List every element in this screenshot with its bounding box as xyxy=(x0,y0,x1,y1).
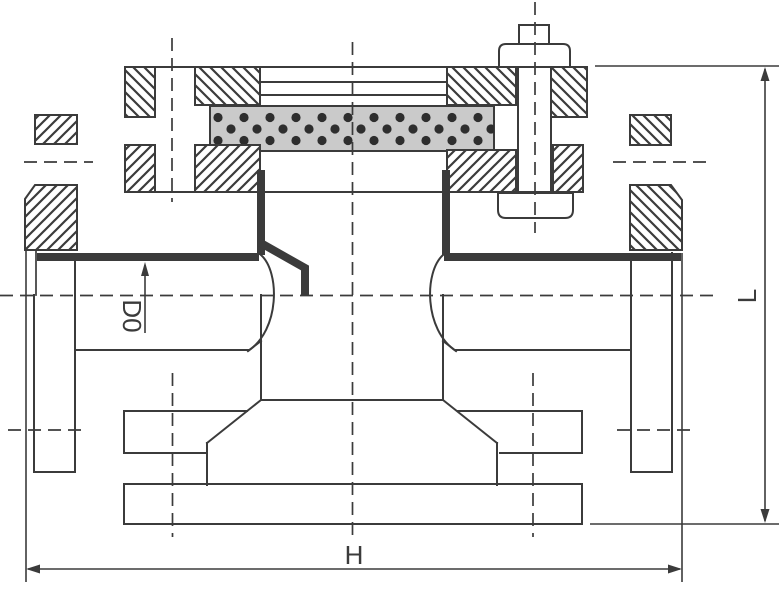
h-arrowhead-left xyxy=(26,565,40,574)
left-pipe-flange-hatching xyxy=(25,115,77,250)
bolt-thread-stub xyxy=(519,25,549,44)
dimension-label-d0: D0 xyxy=(117,299,147,332)
cover-lower-left-inner-block xyxy=(195,145,260,192)
right-pipe-and-flange-outline xyxy=(456,253,672,472)
dimension-label-h: H xyxy=(345,540,364,570)
left-flange-body-block xyxy=(25,185,77,250)
cover-lower-right-inner-block xyxy=(447,150,516,192)
cover-lower-right-outer-block xyxy=(553,145,583,192)
left-pipe-and-flange-outline xyxy=(34,250,248,472)
l-arrowhead-up xyxy=(761,67,770,81)
cover-upper-right-inner-block xyxy=(447,67,516,105)
right-flange-bolt-ring-block xyxy=(630,115,671,145)
skirt-right-cone xyxy=(443,400,497,443)
cover-lower-left-outer-block xyxy=(125,145,155,192)
right-flange-body-block xyxy=(630,185,682,250)
skirt-left-cone xyxy=(207,400,261,443)
dimension-label-l: L xyxy=(732,289,762,303)
body-right-chamfer xyxy=(443,341,456,351)
technical-drawing-page: D0 H L xyxy=(0,0,781,591)
right-pipe-flange-hatching xyxy=(630,115,682,250)
cover-upper-right-outer-block xyxy=(551,67,587,117)
l-arrowhead-down xyxy=(761,509,770,523)
cover-upper-left-outer-block xyxy=(125,67,155,117)
dimension-d0: D0 xyxy=(117,262,149,333)
flanged-filter-valve-section-drawing: D0 H L xyxy=(0,0,781,591)
d0-arrowhead-up xyxy=(141,262,149,276)
cover-upper-left-inner-block xyxy=(195,67,260,105)
deflector-baffle xyxy=(259,242,305,295)
body-left-chamfer xyxy=(248,341,261,351)
left-flange-bolt-ring-block xyxy=(35,115,77,144)
h-arrowhead-right xyxy=(668,565,682,574)
